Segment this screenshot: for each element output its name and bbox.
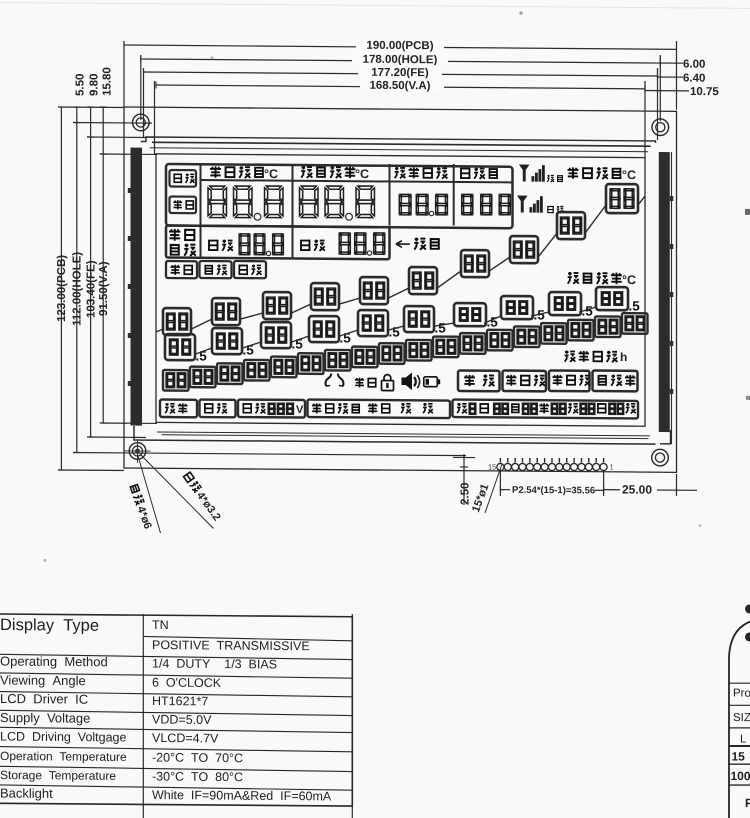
svg-text:15.80: 15.80 xyxy=(102,67,114,96)
svg-text:°C: °C xyxy=(622,168,636,182)
svg-text:°C: °C xyxy=(622,273,636,287)
svg-text:Supply Voltage: Supply Voltage xyxy=(0,710,90,726)
svg-text:Operation Temperature: Operation Temperature xyxy=(0,749,127,764)
svg-text:TN: TN xyxy=(152,618,169,632)
svg-text:9.80: 9.80 xyxy=(89,74,101,96)
svg-text:HT1621*7: HT1621*7 xyxy=(152,694,208,708)
svg-text:Storage Temperature: Storage Temperature xyxy=(0,768,116,783)
svg-text:Display Type: Display Type xyxy=(0,616,99,635)
svg-text:112.00(HOLE): 112.00(HOLE) xyxy=(72,252,84,326)
svg-text:25.00: 25.00 xyxy=(622,483,652,497)
svg-text:POSITIVE TRANSMISSIVE: POSITIVE TRANSMISSIVE xyxy=(152,638,310,653)
svg-text:178.00(HOLE): 178.00(HOLE) xyxy=(363,54,438,67)
svg-text:White IF=90mA&Red IF=60mA: White IF=90mA&Red IF=60mA xyxy=(152,788,332,803)
svg-text:6 O'CLOCK: 6 O'CLOCK xyxy=(152,676,222,691)
svg-text:2.50: 2.50 xyxy=(460,483,472,505)
svg-text:168.50(V.A): 168.50(V.A) xyxy=(370,80,431,92)
svg-text:h: h xyxy=(620,350,627,364)
svg-text:-30°C TO 80°C: -30°C TO 80°C xyxy=(152,770,243,785)
svg-text:103.40(FE): 103.40(FE) xyxy=(86,260,98,318)
svg-text:°C: °C xyxy=(355,167,369,181)
svg-text:VDD=5.0V: VDD=5.0V xyxy=(152,713,212,727)
svg-text:10.75: 10.75 xyxy=(690,86,719,98)
svg-text:V: V xyxy=(296,404,304,416)
svg-text:°C: °C xyxy=(264,167,278,181)
svg-text:1/4 DUTY 1/3 BIAS: 1/4 DUTY 1/3 BIAS xyxy=(152,657,277,672)
svg-text:1: 1 xyxy=(610,463,614,472)
svg-text:-20°C TO 70°C: -20°C TO 70°C xyxy=(152,751,243,766)
svg-text:L: L xyxy=(740,734,747,746)
svg-text:.5: .5 xyxy=(629,299,641,314)
svg-text:6.00: 6.00 xyxy=(683,59,705,71)
svg-text:177.20(FE): 177.20(FE) xyxy=(371,67,429,79)
svg-text:5.50: 5.50 xyxy=(75,74,87,96)
svg-text:Viewing Angle: Viewing Angle xyxy=(0,673,86,689)
svg-text:Pro: Pro xyxy=(733,688,750,700)
svg-text:.5: .5 xyxy=(435,321,447,336)
svg-text:VLCD=4.7V: VLCD=4.7V xyxy=(152,731,219,746)
svg-text:Backlight: Backlight xyxy=(0,786,53,801)
svg-text:123.00(PCB): 123.00(PCB) xyxy=(56,255,68,322)
svg-text:91.50(V.A): 91.50(V.A) xyxy=(98,261,110,316)
svg-text:6.40: 6.40 xyxy=(683,73,705,85)
svg-text:LCD Driver IC: LCD Driver IC xyxy=(0,691,88,707)
svg-text:LCD Driving Voltgage: LCD Driving Voltgage xyxy=(0,730,126,745)
svg-text:15: 15 xyxy=(732,750,746,764)
svg-text:190.00(PCB): 190.00(PCB) xyxy=(366,40,433,53)
svg-text:P: P xyxy=(745,796,750,810)
svg-text:Operating Method: Operating Method xyxy=(0,654,108,670)
svg-text:P2.54*(15-1)=35.56: P2.54*(15-1)=35.56 xyxy=(512,485,595,497)
svg-text:SIZ: SIZ xyxy=(733,712,750,724)
svg-text:15: 15 xyxy=(488,463,496,472)
svg-text:100: 100 xyxy=(731,769,750,783)
